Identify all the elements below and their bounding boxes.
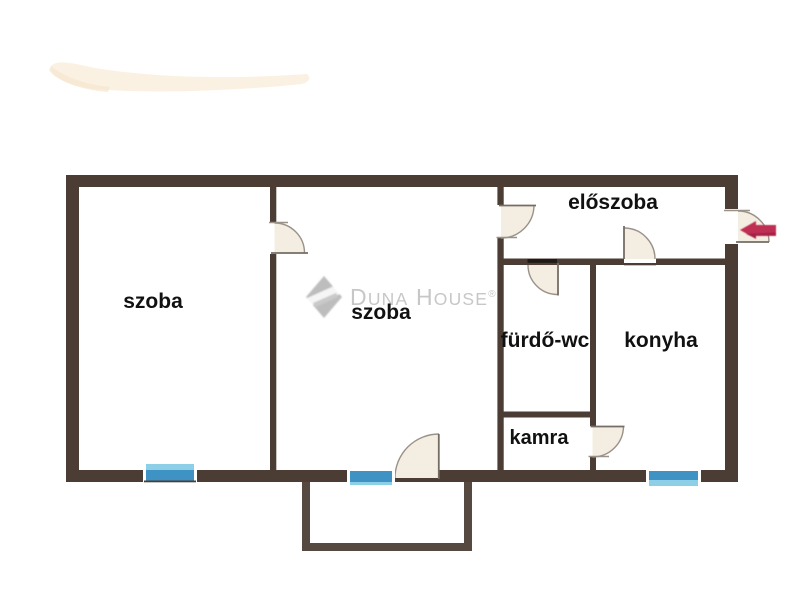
svg-text:szoba: szoba — [351, 301, 411, 324]
svg-text:előszoba: előszoba — [568, 191, 658, 214]
svg-text:kamra: kamra — [510, 427, 570, 449]
svg-text:szoba: szoba — [123, 290, 183, 313]
svg-text:fürdő-wc: fürdő-wc — [501, 329, 590, 352]
svg-text:konyha: konyha — [624, 329, 698, 352]
